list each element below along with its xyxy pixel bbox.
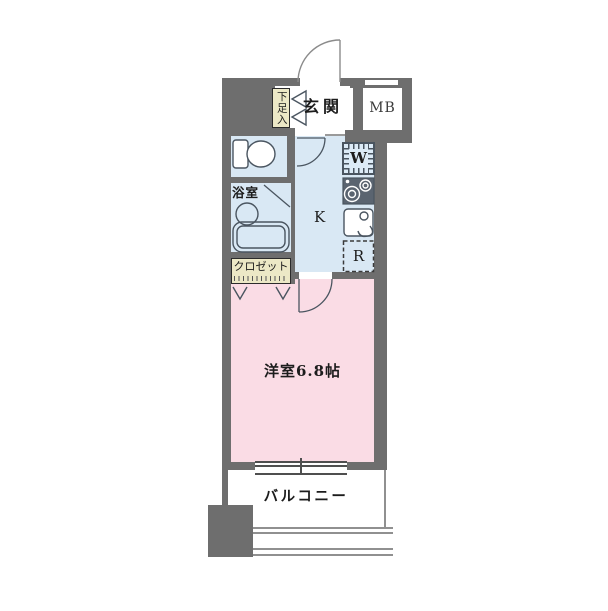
entrance-label: 玄関 [293,98,353,116]
entrance-threshold-line [325,134,345,136]
kitchen-door-arc [297,138,325,166]
closet-fold-door-icon [276,287,290,299]
kitchen-label: K [314,209,325,226]
bathroom-label: 浴室 [232,186,259,200]
bathroom-door-line [264,185,290,207]
stove-knob-icon [346,180,350,184]
entrance-door-arc [298,40,340,82]
closet-fold-door-icon [233,287,247,299]
toilet-tank-icon [233,140,248,168]
washer-label: W [343,143,374,174]
main-room-label: 洋室6.8帖 [231,362,374,380]
room-door-arc [299,279,332,312]
toilet-bowl-icon [247,141,275,167]
floor-plan: 下足入 クロゼット [0,0,608,611]
meter-box-label: MB [363,100,402,118]
refrigerator-label: R [343,241,374,272]
fixtures-overlay [0,0,608,611]
balcony-label: バルコニー [240,488,372,505]
bathtub-inner-icon [237,226,285,248]
